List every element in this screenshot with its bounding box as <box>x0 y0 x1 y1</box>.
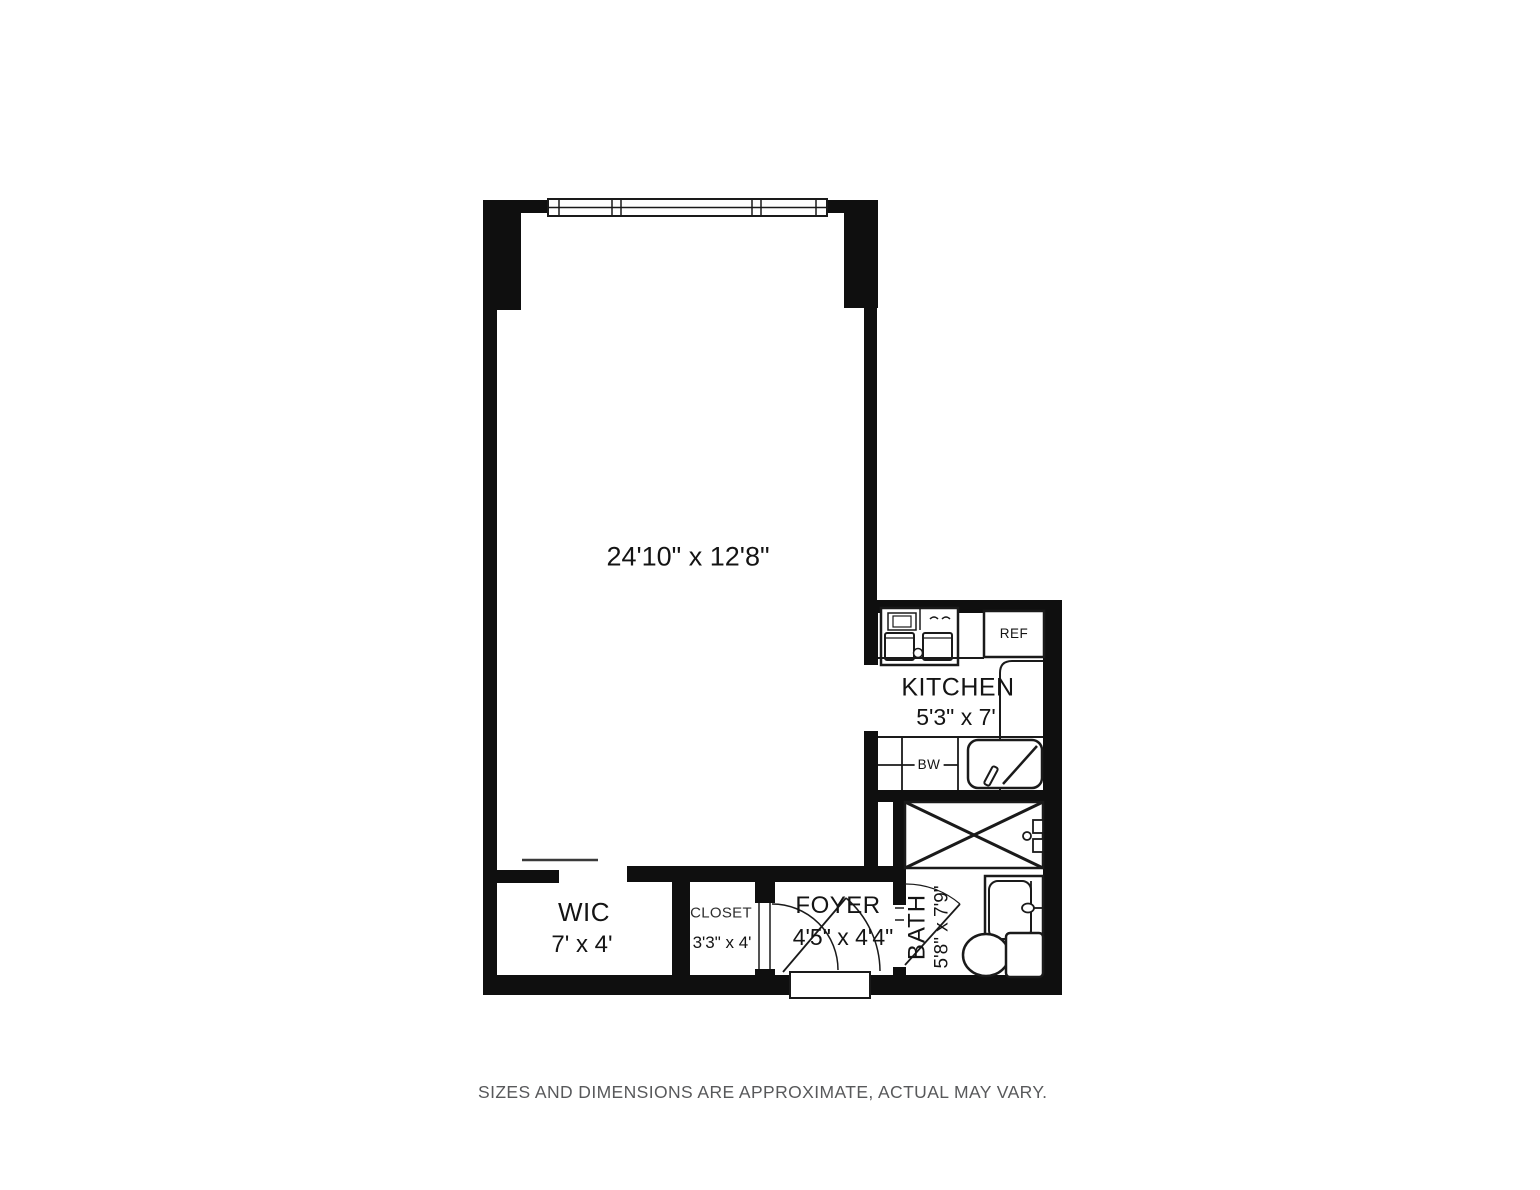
bath-dimensions: 5'8" x 7'9" <box>931 885 953 968</box>
bath-label-group: BATH 5'8" x 7'9" <box>903 885 952 968</box>
shower-icon <box>905 802 1043 868</box>
refrigerator-label: REF <box>1000 626 1029 642</box>
plan-symbols <box>0 0 1540 1190</box>
kitchen-dimensions: 5'3" x 7' <box>916 704 996 730</box>
foyer-dimensions: 4'5" x 4'4" <box>793 924 894 950</box>
kitchen-label: KITCHEN <box>901 674 1014 703</box>
wic-dimensions: 7' x 4' <box>551 931 612 959</box>
closet-label: CLOSET <box>690 904 752 921</box>
kitchen-sink-icon <box>968 740 1042 788</box>
stove-icon <box>881 608 958 665</box>
dishwasher-label: BW <box>915 757 944 773</box>
wic-label: WIC <box>558 898 610 928</box>
window <box>548 199 827 216</box>
toilet-icon <box>963 933 1043 977</box>
floor-plan: 24'10" x 12'8" KITCHEN 5'3" x 7' REF BW … <box>0 0 1540 1190</box>
foyer-label: FOYER <box>795 892 880 920</box>
disclaimer-text: SIZES AND DIMENSIONS ARE APPROXIMATE, AC… <box>478 1082 1047 1103</box>
closet-dimensions: 3'3" x 4' <box>693 933 752 953</box>
main-room-dimensions: 24'10" x 12'8" <box>606 541 769 572</box>
bath-label: BATH <box>903 885 931 968</box>
